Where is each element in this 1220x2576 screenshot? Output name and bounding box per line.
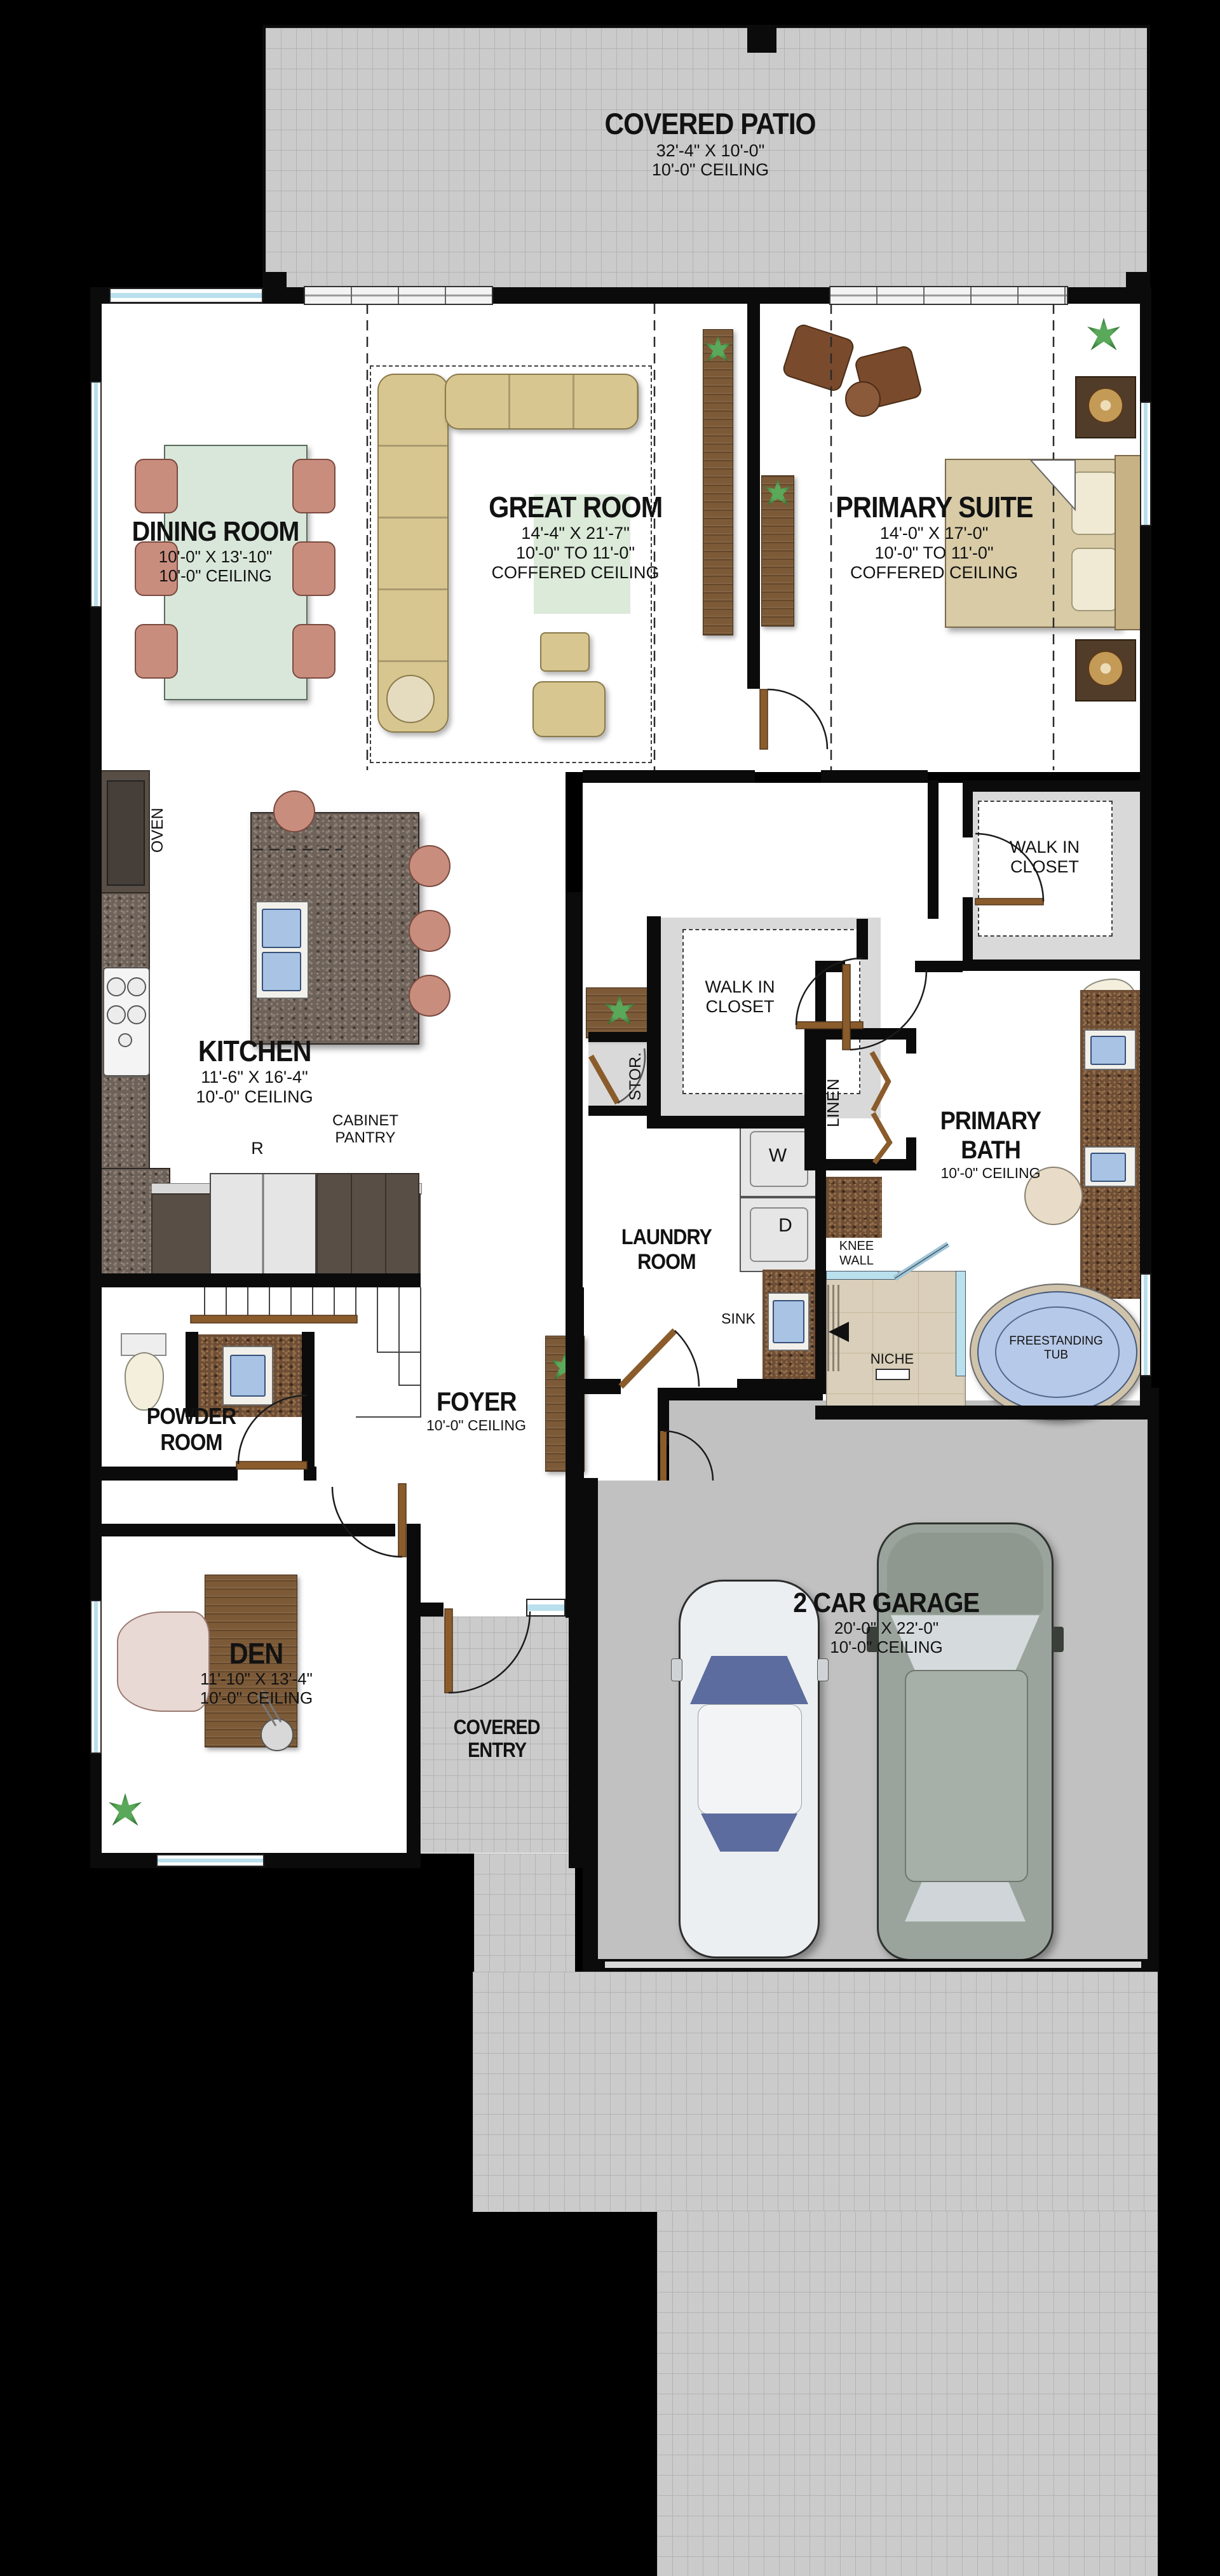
room-ceiling: 10'-0" TO 11'-0" [796,543,1072,563]
room-ceiling: 10'-0" CEILING [414,1417,538,1434]
room-title: FOYER [437,1386,517,1417]
shower-glass-door [895,1244,948,1278]
label-primary-suite: PRIMARY SUITE 14'-0" X 17'-0" 10'-0" TO … [796,491,1072,583]
room-line: POWDER [146,1403,235,1429]
door-linen-bifold [872,1052,890,1163]
room-ceiling: 10'-0" CEILING [145,1087,364,1107]
label-knee-wall: KNEE WALL [827,1239,886,1268]
label-garage: 2 CAR GARAGE 20'-0" X 22'-0" 10'-0" CEIL… [762,1587,1010,1657]
room-line: ENTRY [468,1739,526,1761]
room-dims: 11'-10" X 13'-4" [175,1670,337,1689]
room-line: LAUNDRY [621,1225,711,1250]
label-freestanding-tub: FREESTANDING TUB [989,1334,1123,1362]
room-title: KITCHEN [198,1034,311,1068]
label-dryer: D [773,1215,798,1237]
plan-annotations-svg [0,0,1220,2576]
label-oven: OVEN [149,783,174,878]
label-niche: NICHE [863,1351,921,1367]
room-line: COVERED [454,1716,540,1739]
room-line: BATH [961,1136,1020,1165]
room-ceiling: 10'-0" CEILING [175,1689,337,1708]
label-refrigerator: R [243,1139,271,1158]
annotation-line: KNEE [827,1239,886,1254]
label-covered-patio: COVERED PATIO 32'-4" X 10'-0" 10'-0" CEI… [520,107,901,180]
floor-plan: COVERED PATIO 32'-4" X 10'-0" 10'-0" CEI… [0,0,1220,2576]
room-title: DINING ROOM [132,516,299,548]
room-title: GREAT ROOM [489,491,662,524]
room-line: CLOSET [688,997,792,1017]
stairs [191,1287,421,1417]
label-linen: LINEN [823,1052,850,1154]
annotation-line: CABINET [318,1112,413,1129]
room-ceiling: 10'-0" TO 11'-0" [437,543,714,563]
room-ceiling2: COFFERED CEILING [796,563,1072,583]
annotation: W [765,1145,790,1167]
door-den [332,1484,406,1557]
annotation-line: PANTRY [318,1129,413,1146]
room-dims: 11'-6" X 16'-4" [145,1068,364,1087]
label-dining-room: DINING ROOM 10'-0" X 13'-10" 10'-0" CEIL… [104,516,327,585]
annotation: R [243,1139,271,1158]
room-ceiling: 10'-0" CEILING [520,160,901,180]
room-line: ROOM [160,1429,222,1455]
door-laundry [621,1331,699,1386]
annotation: NICHE [863,1351,921,1367]
label-powder-room: POWDER ROOM [113,1403,269,1455]
door-primary-suite [760,689,827,749]
room-ceiling: 10'-0" CEILING [104,567,327,586]
room-ceiling2: COFFERED CEILING [437,563,714,583]
room-line: WALK IN [688,977,792,997]
room-title: COVERED PATIO [605,107,816,141]
label-walkin-closet-primary: WALK IN CLOSET [990,837,1099,877]
annotation: SINK [713,1310,764,1327]
label-walkin-closet-hall: WALK IN CLOSET [688,977,792,1017]
label-primary-bath: PRIMARY BATH 10'-0" CEILING [907,1107,1074,1181]
label-den: DEN 11'-10" X 13'-4" 10'-0" CEILING [175,1637,337,1708]
room-dims: 14'-0" X 17'-0" [796,524,1072,543]
door-primary-bath [843,965,926,1050]
room-line: CLOSET [990,857,1099,877]
label-cabinet-pantry: CABINET PANTRY [318,1112,413,1147]
door-front-entry [445,1609,530,1693]
room-line: PRIMARY [940,1107,1041,1136]
room-dims: 14'-4" X 21'-7" [437,524,714,543]
label-storage: STOR. [627,1045,654,1108]
annotation-line: TUB [989,1348,1123,1362]
room-line: WALK IN [990,837,1099,857]
room-line: ROOM [637,1250,696,1275]
door-garage-entry [663,1431,713,1481]
label-sink: SINK [713,1310,764,1327]
room-title: DEN [229,1637,283,1670]
label-covered-entry: COVERED ENTRY [433,1716,560,1762]
room-dims: 10'-0" X 13'-10" [104,548,327,567]
label-foyer: FOYER 10'-0" CEILING [414,1386,538,1434]
label-laundry-room: LAUNDRY ROOM [601,1225,731,1275]
door-walkin-closet-hall [796,958,863,1029]
annotation-line: WALL [827,1254,886,1268]
room-title: PRIMARY SUITE [836,491,1033,524]
shower-head-arrow [829,1322,849,1342]
room-dims: 20'-0" X 22'-0" [762,1619,1010,1638]
room-title: 2 CAR GARAGE [794,1587,980,1619]
stair-railing [191,1315,357,1323]
room-dims: 32'-4" X 10'-0" [520,141,901,161]
label-washer: W [765,1145,790,1167]
label-great-room: GREAT ROOM 14'-4" X 21'-7" 10'-0" TO 11'… [437,491,714,583]
label-kitchen: KITCHEN 11'-6" X 16'-4" 10'-0" CEILING [145,1034,364,1107]
room-ceiling: 10'-0" CEILING [762,1638,1010,1657]
annotation-line: FREESTANDING [989,1334,1123,1348]
room-ceiling: 10'-0" CEILING [907,1165,1074,1181]
annotation: D [773,1215,798,1237]
